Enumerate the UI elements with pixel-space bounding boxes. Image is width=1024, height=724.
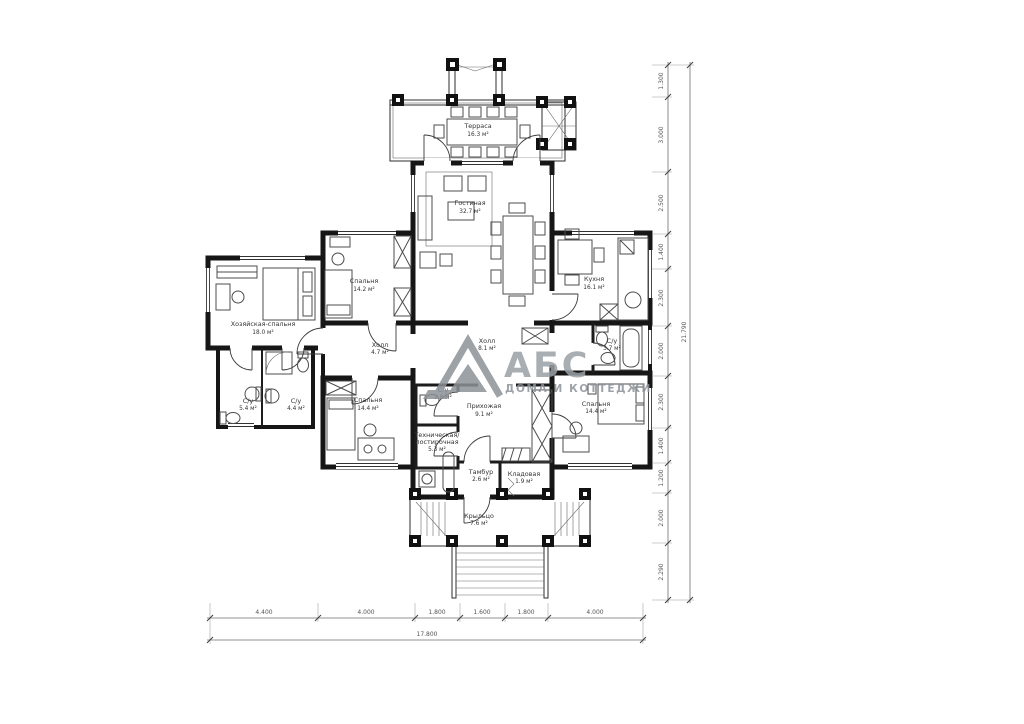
dim-right-4: 2.300 [658,289,665,306]
room-bedroom-br-name: Спальня [582,400,611,408]
terrace-pergola [390,58,576,161]
room-porch-area: 7.6 м² [470,520,488,527]
room-wc-right-area: 3.7 м² [603,345,621,352]
logo-abbr: АБС [504,346,589,386]
room-living-name: Гостиная [454,199,485,207]
room-entry-area: 9.1 м² [475,411,493,418]
room-bedroom-tl-name: Спальня [350,277,379,285]
dim-right-8: 1.200 [658,469,665,486]
dim-right-total: 21.790 [681,321,688,342]
room-bedroom-br-area: 14.4 м² [585,408,606,415]
room-kitchen-area: 16.1 м² [583,284,604,291]
dim-right-10: 2.290 [658,563,665,580]
room-hall-area: 8.1 м² [478,345,496,352]
dim-right-6: 2.300 [658,393,665,410]
dim-right-7: 1.400 [658,437,665,454]
room-master-area: 18.0 м² [252,329,273,336]
windows [204,159,654,469]
room-storage-area: 1.9 м² [515,478,533,485]
room-bedroom-bl-area: 14.4 м² [357,405,378,412]
room-wc-left2-name: С/у [291,397,302,405]
dim-right-3: 1.400 [658,243,665,260]
dim-right-0: 1.300 [658,72,665,89]
dim-right-5: 2.000 [658,342,665,359]
room-wc-left1-area: 5.4 м² [239,405,257,412]
room-wc-left2-area: 4.4 м² [287,405,305,412]
dim-bottom-3: 1.600 [473,609,490,616]
dim-bottom-2: 1.800 [428,609,445,616]
logo-tagline: ДОМА И КОТТЕДЖИ [505,383,652,395]
porch-stairs [409,488,591,598]
room-storage-name: Кладовая [508,470,541,478]
room-terrace-name: Терраса [463,122,491,130]
dim-bottom-5: 4.000 [586,609,603,616]
room-tech-area: 5.3 м² [428,446,446,453]
dimension-chain-right: 1.300 3.000 2.500 1.400 2.300 2.000 2.30… [652,62,694,603]
dim-bottom-0: 4.400 [255,609,272,616]
room-entry-name: Прихожая [467,402,501,410]
floor-plan-drawing: Терраса 16.3 м² Гостиная 32.7 м² Кухня 1… [0,0,1024,724]
dim-bottom-1: 4.000 [357,609,374,616]
room-hall-small-area: 4.7 м² [371,349,389,356]
room-tech-name2: постирочная [415,438,458,446]
room-porch-name: Крыльцо [464,512,494,520]
dim-right-9: 2.000 [658,509,665,526]
room-terrace-area: 16.3 м² [467,131,488,138]
room-wc-left1-name: С/у [243,397,254,405]
room-vestibule-area: 2.6 м² [472,476,490,483]
dim-bottom-total: 17.800 [417,631,438,638]
room-hall-small-name: Холл [372,341,388,349]
room-bedroom-bl-name: Спальня [354,396,383,404]
room-master-name: Хозяйская-спальня [231,320,296,328]
room-living-area: 32.7 м² [459,208,480,215]
dim-right-1: 3.000 [658,126,665,143]
room-kitchen-name: Кухня [584,275,604,283]
dim-bottom-4: 1.800 [517,609,534,616]
room-bedroom-tl-area: 14.2 м² [353,286,374,293]
dim-right-2: 2.500 [658,194,665,211]
floor-plan-canvas: Терраса 16.3 м² Гостиная 32.7 м² Кухня 1… [0,0,1024,724]
room-vestibule-name: Тамбур [468,468,493,476]
dimension-chain-bottom: 4.400 4.000 1.800 1.600 1.800 4.000 17.8… [207,603,646,644]
room-hall-name: Холл [479,337,495,345]
room-wc-right-name: С/у [607,337,618,345]
